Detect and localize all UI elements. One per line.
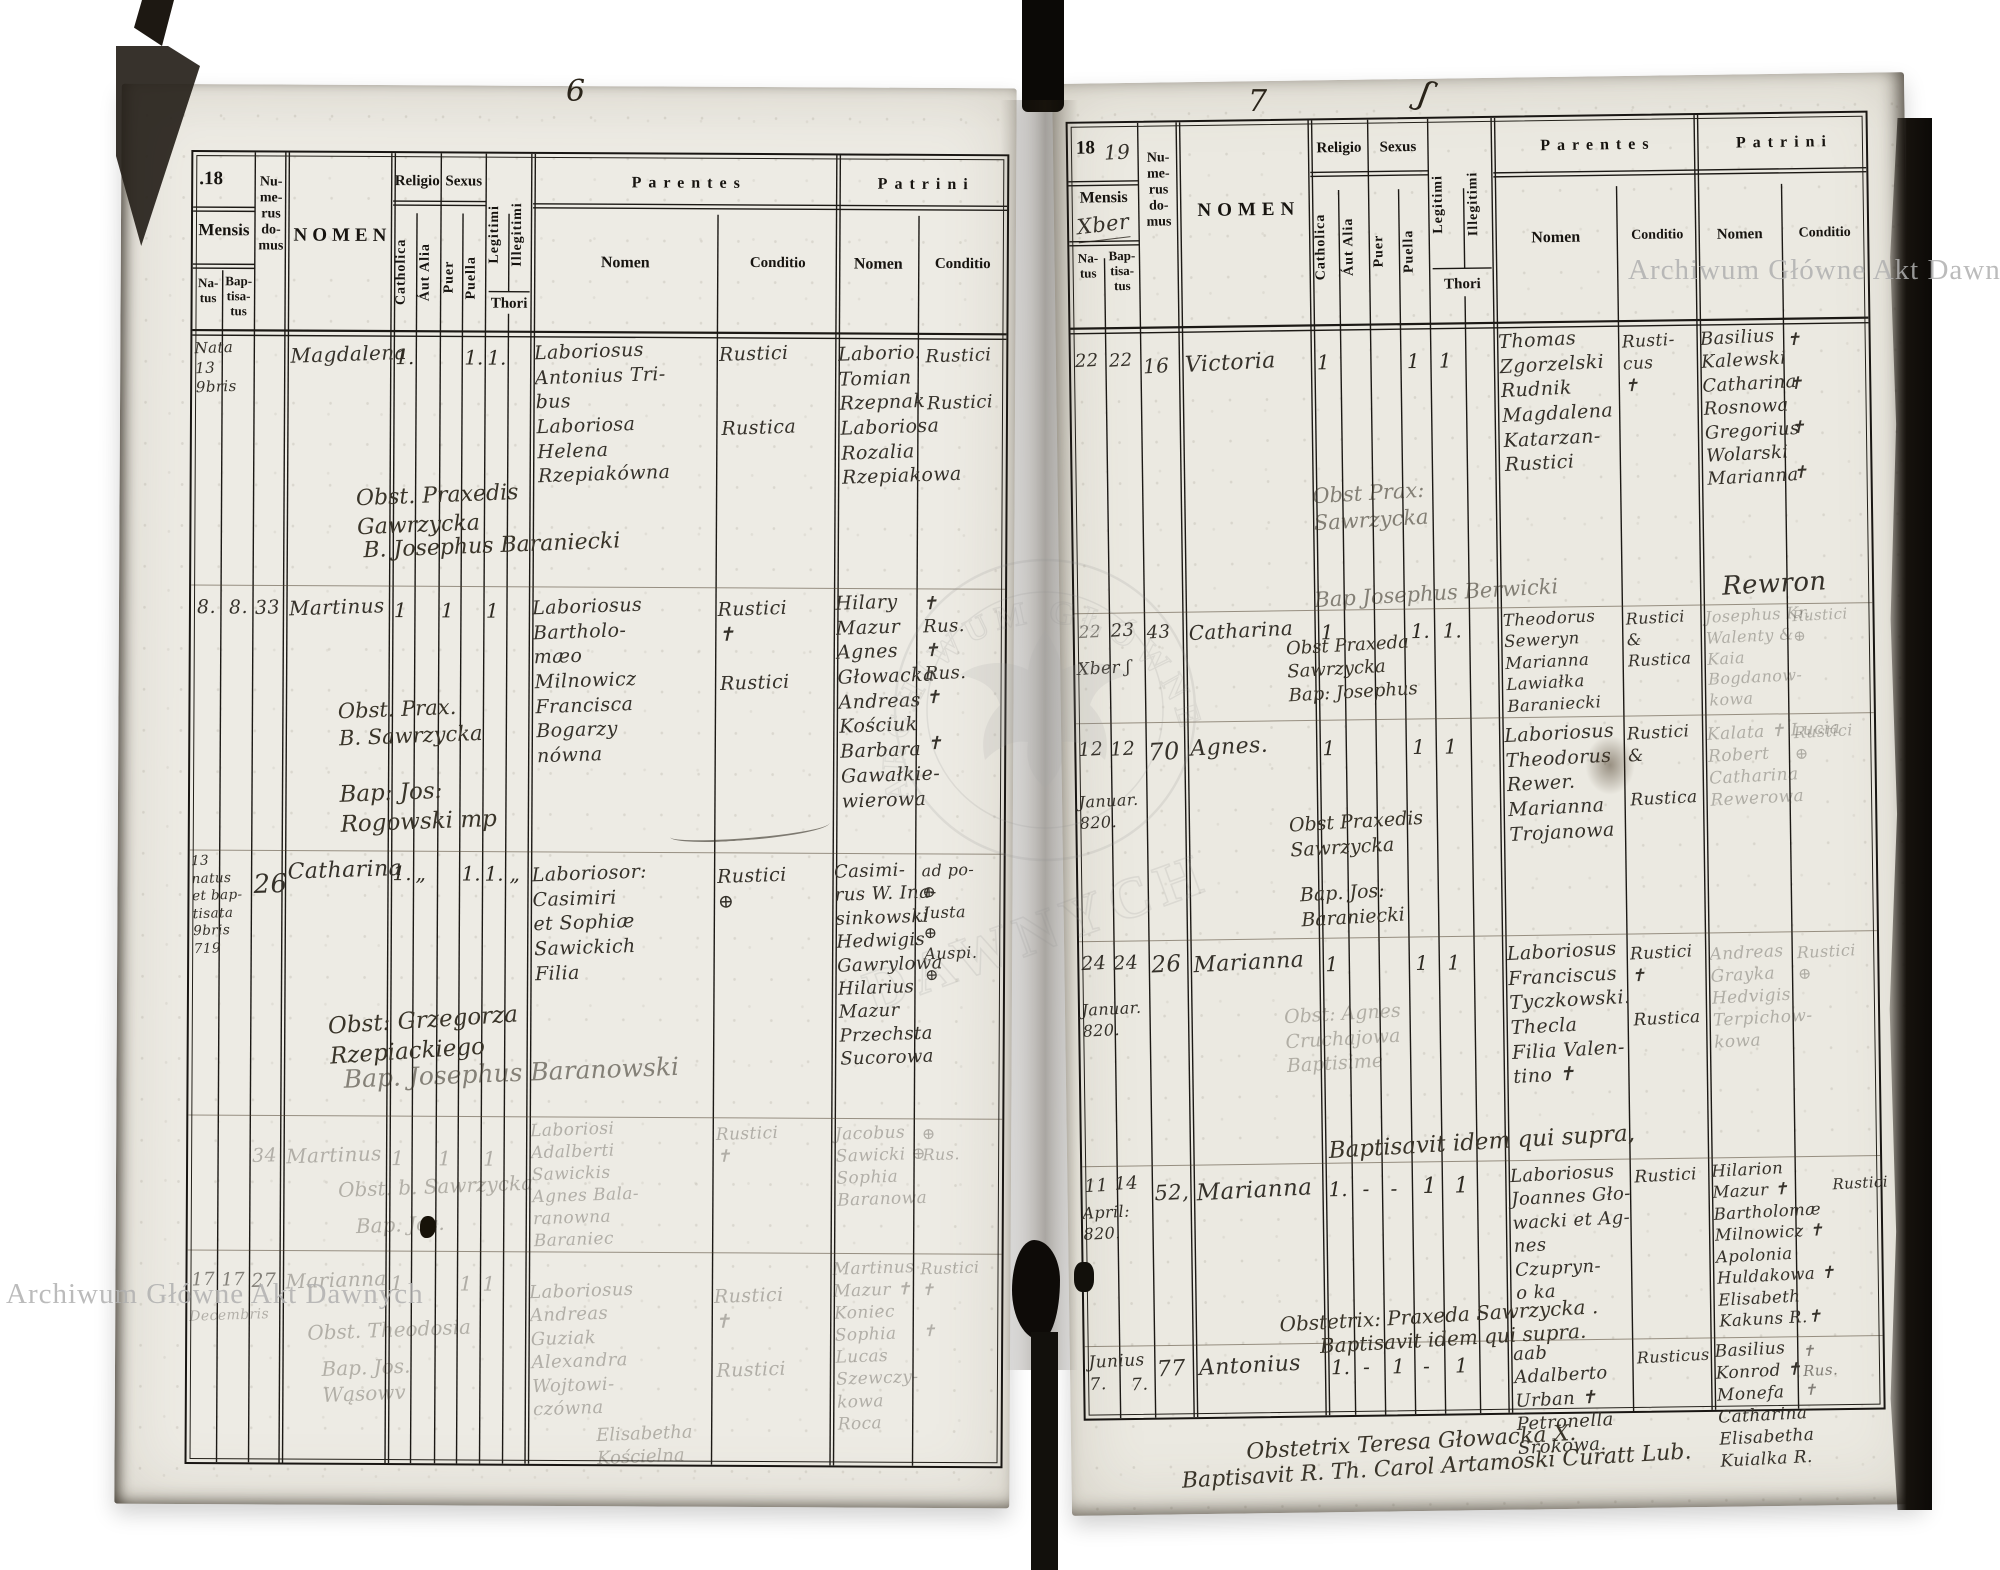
mark-catholica: 1. [395,345,414,369]
trailing-note: Elisabetha Kościelna [596,1417,778,1471]
folio-number-left: 6 [566,74,585,109]
godparents-condition: Rustici ⊕ [1796,939,1878,985]
header-patrini: Patrini [1696,133,1866,153]
godparents-condition: Rustici ⊕ [1792,603,1874,646]
year-handwritten: 19 [1103,138,1131,165]
header-patrini-nomen: Nomen [838,255,919,273]
header-parentes: Parentes [533,174,838,194]
header-puella: Puella [463,227,485,327]
baptisatus-date: 14 [1114,1171,1139,1196]
header-puer: Puer [441,227,462,327]
midwife-note: Obst Praxedis Sawrzycka [1288,801,1510,863]
header-baptisatus: Bap- tisa- tus [1105,249,1139,294]
natus-date: 8. [197,595,217,620]
mark-puella: 1 [1412,735,1425,759]
parents-condition: Rustici ✝ Rustici [714,1281,833,1384]
header-religio: Religio [393,173,441,190]
header-thori: Thori [1430,276,1495,294]
natus-date: 11 [1084,1174,1109,1199]
mark-catholica: 1 [391,1146,404,1170]
mark-puella: 1 [459,1271,472,1295]
mark-puella: 1 [1415,951,1428,975]
header-mensis: Mensis [193,220,255,240]
scanned-baptism-register-spread: 6 7 ʃ [0,0,2000,1570]
header-parentes: Parentes [1493,135,1696,156]
mark-puer: - [1390,1176,1397,1200]
parents-condition: Rustici [1634,1162,1713,1188]
parents-names: Laboriosus Joannes Gło- wacki et Ag- nes… [1510,1159,1641,1306]
natus-date: 13 natus et bap- tisata 9bris 719 [191,851,254,958]
natus-date: 22 [1074,349,1099,374]
header-legitimi: Legitimi [1430,148,1462,260]
corner-blot [134,0,174,46]
header-baptisatus: Bap- tisa- tus [223,274,253,319]
baptizer-note: Bap. Jos. Wąsowv [321,1347,563,1408]
header-numerus-domus: Nu- me- rus do- mus [255,174,287,255]
header-legitimi: Legitimi [487,182,509,287]
mark-legitimi: 1 [483,1147,496,1171]
mark-legitimi: 1 [1444,734,1457,758]
mark-legitimi: 1. [485,862,504,886]
mark-aut-alia: „ [416,861,427,885]
baptism-entry: 11 14 April: 820. 52, Marianna 1. - - 1 … [1082,1156,1882,1347]
natus-date: Junius 7. [1088,1348,1160,1396]
child-name: Victoria [1184,347,1276,380]
header-sexus: Sexus [1368,139,1428,157]
archive-watermark-right: Archiwum Główne Akt Dawnych [1628,254,2000,287]
emblem-word: DAWNYCH [855,839,1218,1024]
header-illegitimi: Illegitimi [510,182,533,287]
date-note: April: 820. [1082,1201,1148,1246]
parents-condition: Rustici & Rustica [1626,720,1709,812]
baptizer-note: Bap: Jos: Rogowski mp [339,772,571,841]
mark-legitimi: 1 [1455,1353,1468,1377]
child-name: Antonius [1198,1350,1301,1384]
child-name: Magdalena [290,339,407,369]
parents-condition: Rustici ✝ Rustica [1629,939,1712,1031]
parents-condition: Rustici ✝ [715,1120,832,1168]
parents-condition: Rusticus [1636,1344,1715,1369]
mark-puer: 1 [441,598,454,622]
header-parentes-conditio: Conditio [1617,227,1697,244]
mark-puella: 1 [1407,349,1420,373]
header-parentes-nomen: Nomen [533,254,718,273]
pen-flourish [669,815,830,845]
midwife-note: Obst. Theodosia [307,1311,548,1346]
year-prefix: 18 [1076,137,1095,159]
header-religio: Religio [1310,140,1368,158]
month-handwritten: Xber [1075,208,1131,243]
mark-catholica: 1 [1317,350,1330,374]
midwife-note: Obst Prax: Sawrzycka [1312,471,1535,538]
mark-catholica: 1 [394,598,407,622]
house-number: 26 [253,868,288,903]
house-number: 77 [1156,1354,1195,1385]
child-name: Catharina [287,855,402,887]
header-numerus-domus: Nu- me- rus do- mus [1138,150,1179,231]
header-puella: Puella [1401,199,1428,303]
house-number: 16 [1142,352,1181,380]
header-catholica: Catholica [1312,186,1338,308]
godparents-condition: Rustici Rustici [925,343,1007,416]
house-number: 33 [255,595,290,621]
midwife-note: Obst: Agnes Cruchajowa Baptisime [1283,994,1487,1079]
mark-aut-alia: - [1363,1355,1370,1379]
mark-catholica: 1. [1331,1355,1350,1379]
header-illegitimi: Illegitimi [1465,148,1493,260]
parents-names: Theodorus Seweryn Marianna Lawiałka Bara… [1502,604,1631,718]
parents-names: Laboriosus Bartholo- mæo Milnowicz Franc… [532,590,718,769]
mark-aut-alia: - [1362,1177,1369,1201]
mark-puer: 1 [438,1146,451,1170]
archive-watermark-left: Archiwum Główne Akt Dawnych [6,1278,424,1311]
mark-puella: 1 [1422,1174,1436,1199]
mark-legitimi: 1 [1439,348,1452,372]
house-number: 52, [1154,1178,1193,1207]
header-patrini: Patrini [838,175,1007,194]
header-sexus: Sexus [441,173,486,190]
midwife-note: Obst Praxeda Sawrzycka Bap: Josephus [1285,625,1504,707]
header-parentes-conditio: Conditio [718,255,838,273]
parents-condition: Rustici & Rustica [1625,606,1706,672]
header-nomen: NOMEN [1181,198,1311,222]
header-aut-alia: Áut Alia [1340,186,1368,308]
folio-number-right: 7 [1248,84,1267,119]
paper-stain [1585,735,1635,795]
parents-condition: Rusti- cus ✝ [1621,328,1702,398]
parents-names: Laboriosor: Casimiri et Sophiæ Sawickich… [531,857,715,986]
mark-catholica: 1 [1322,736,1335,760]
mark-legitimi: 1 [482,1272,495,1296]
godparents-condition: Rustici ✝ ✝ [920,1257,1003,1343]
godparents-condition: ✝ ✝ ✝ ✝ [1786,325,1874,484]
baptisatus-date: 8. [229,595,249,620]
mark-catholica: 1. [1328,1177,1347,1201]
child-name: Martinus [289,592,385,621]
header-thori: Thori [486,296,533,313]
header-patrini-conditio: Conditio [919,256,1007,273]
parents-condition: Rustici Rustica [719,339,838,442]
mark-legitimi: 1 [486,599,499,623]
mark-illegitimi: „ [510,862,521,886]
header-mensis: Mensis [1069,189,1139,208]
child-name: Marianna [1196,1173,1313,1209]
header-patrini-conditio: Conditio [1782,225,1867,242]
godparents-condition: Rustici [1832,1172,1893,1195]
signature: Rewron [1721,565,1827,604]
baptisatus-date: 22 [1108,348,1133,373]
header-patrini-nomen: Nomen [1697,226,1782,244]
header-natus: Na- tus [194,276,223,306]
mark-legitimi: 1. [487,346,506,370]
natus-date: Nata 13 9bris [194,337,256,397]
header-parentes-nomen: Nomen [1494,228,1617,248]
baptizer-note: Bap. Jos: Baraniecki [1299,871,1521,933]
header-puer: Puer [1371,199,1398,303]
header-catholica: Catholica [393,215,416,329]
midwife-note: Obst. Prax. B. Sawrzycka [337,690,549,753]
mark-catholica: 1 [1325,952,1338,976]
child-name: Martinus [286,1140,382,1169]
baptism-entry: Junius 7. 7. 77 Antonius 1. - 1 - 1 aab … [1085,1336,1884,1419]
book-gutter-top [1022,0,1064,112]
parents-names: Laboriosus Franciscus Tyczkowski. Thecla… [1506,936,1638,1090]
mark-puella: 1. [464,345,483,369]
godparents-condition: Rustici ⊕ [1793,719,1875,765]
ink-blot [1074,1262,1094,1292]
year-prefix: .18 [199,168,223,190]
parents-names: Thomas Zgorzelski Rudnik Magdalena Katar… [1498,324,1630,478]
mark-legitimi: 1 [1447,950,1460,974]
book-gutter-bottom [1031,1332,1058,1570]
mark-puella: - [1423,1354,1430,1378]
mark-puella: 1. [462,861,481,885]
godparents-condition: ✝ Rus. ✝ [1802,1338,1885,1401]
mark-puer: 1 [1392,1354,1405,1378]
baptisatus-date: 7. [1131,1373,1149,1396]
eagle-silhouette [960,630,1130,788]
mark-catholica: 1. [393,861,412,885]
parents-names: Laboriosus Antonius Tri- bus Laboriosa H… [534,335,719,489]
mark-legitimi: 1 [1454,1173,1468,1198]
header-aut-alia: Áut Alia [417,215,440,329]
archive-eagle-emblem-watermark: ARCHIWUM GŁÓWNE DAWNYCH [810,470,1270,1030]
house-number: 34 [252,1143,287,1169]
godparents-condition: ⊕ Rus. [922,1122,1003,1166]
header-nomen: NOMEN [287,225,393,248]
baptism-entry: 34 Martinus 1 1 1 Laboriosi Adalberti Sa… [188,1115,1003,1254]
